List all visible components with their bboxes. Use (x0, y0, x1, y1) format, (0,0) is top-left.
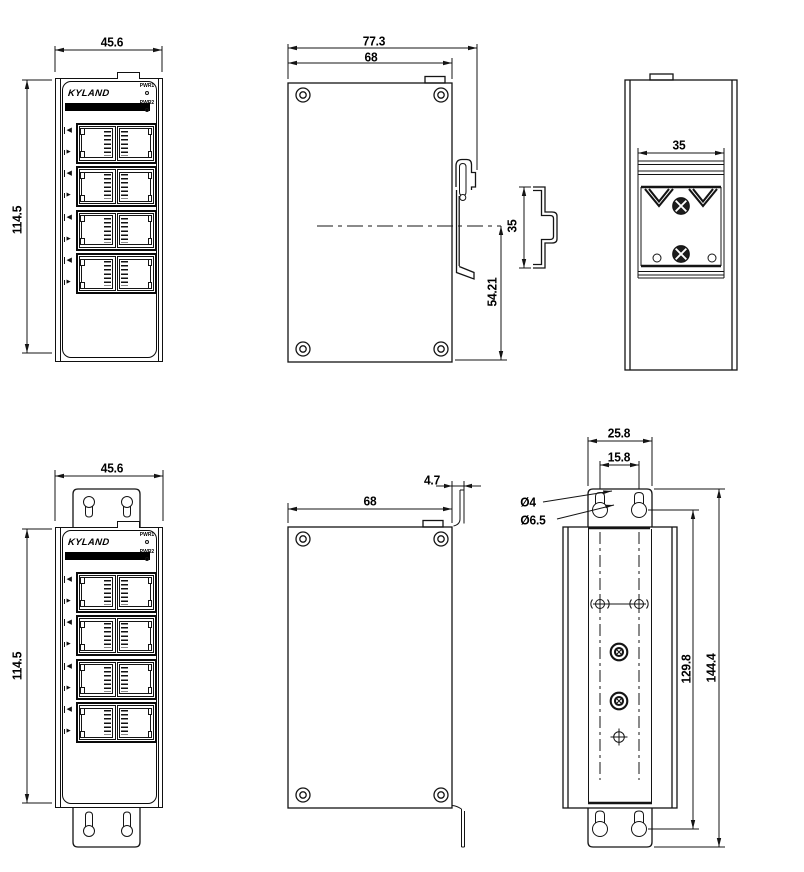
din-clip-side (456, 160, 476, 280)
tab-side-bottom (423, 521, 443, 528)
logo-bar (65, 103, 150, 111)
dim-front-top-width: 45.6 (101, 35, 124, 50)
keyhole-icon (632, 822, 647, 837)
port-row (76, 123, 157, 164)
dim-bracket-height: 144.4 (704, 653, 719, 682)
din-rail-profile (519, 187, 557, 268)
port-out-icon: ▶ (64, 729, 71, 735)
port-in-icon: ◀ (64, 170, 72, 177)
keyhole-icon (632, 503, 647, 518)
rj45-port (117, 575, 154, 610)
rj45-port (79, 256, 116, 291)
port-row (76, 210, 157, 251)
dim-front-top-height: 114.5 (10, 206, 25, 234)
port-in-icon: ◀ (64, 257, 72, 264)
dimension-drawing: KYLAND PWR1 PWR2 ◀ ▶ ◀ ▶ ◀ ▶ ◀ ▶ (0, 0, 804, 872)
rj45-port (79, 213, 116, 248)
side-view-bottom (288, 481, 481, 847)
side-rail-right (158, 79, 159, 361)
phillips-screw-icon (673, 198, 689, 214)
port-out-icon: ▶ (64, 599, 71, 605)
rear-view-top (625, 74, 737, 370)
dim-side-top-body: 68 (365, 50, 378, 65)
pwr1-label: PWR1 (140, 532, 154, 538)
kyland-logo: KYLAND (67, 537, 110, 548)
rj45-port (117, 126, 154, 161)
side-rail-right (158, 528, 159, 807)
rj45-port (79, 705, 116, 740)
port-in-icon: ◀ (64, 127, 72, 134)
dim-rail-center-bottom: 54.21 (485, 277, 500, 306)
port-in-icon: ◀ (64, 706, 72, 713)
port-row (76, 615, 157, 656)
rj45-port (117, 256, 154, 291)
dim-front-bottom-height: 114.5 (10, 652, 25, 680)
wall-bracket-rear-top (588, 489, 652, 527)
keyhole-icon (593, 822, 608, 837)
dim-hole-span: 129.8 (679, 654, 694, 683)
front-view-top: KYLAND PWR1 PWR2 ◀ ▶ ◀ ▶ ◀ ▶ ◀ ▶ (55, 78, 163, 362)
pwr1-led: PWR1 (139, 533, 156, 544)
port-out-icon: ▶ (64, 150, 71, 156)
pwr2-led: PWR2 (139, 550, 156, 561)
port-in-icon: ◀ (64, 576, 72, 583)
position-marker-icon (611, 729, 628, 746)
dim-side-top-total: 77.3 (363, 34, 386, 49)
port-out-icon: ▶ (64, 686, 71, 692)
din-tab-rear-top (650, 74, 673, 80)
dim-hole-spacing: 15.8 (608, 450, 631, 465)
dim-bracket-width: 25.8 (608, 426, 631, 441)
rj45-port (117, 618, 154, 653)
keyhole-icon (84, 826, 95, 837)
port-row (76, 253, 157, 294)
keyhole-icon (122, 497, 133, 508)
dim-plate-offset: 4.7 (424, 473, 440, 488)
tab-front-bottom (117, 521, 140, 528)
front-panel: KYLAND PWR1 PWR2 ◀ ▶ ◀ ▶ ◀ ▶ ◀ ▶ (62, 81, 157, 358)
din-tab-front-top (117, 72, 140, 79)
led-indicator-icon (145, 108, 149, 112)
grounding-screw-icon (611, 644, 628, 661)
wall-bracket-rear-bottom (588, 808, 652, 847)
rj45-port (79, 575, 116, 610)
rj45-port (117, 169, 154, 204)
rj45-port (117, 662, 154, 697)
din-rail-edges (638, 161, 724, 175)
front-view-bottom: KYLAND PWR1 PWR2 ◀ ▶ ◀ ▶ ◀ ▶ ◀ ▶ (55, 527, 163, 808)
side-view-top (288, 44, 557, 362)
rj45-port (79, 126, 116, 161)
port-in-icon: ◀ (64, 663, 72, 670)
wall-plate-edge (453, 490, 465, 847)
pwr1-led: PWR1 (139, 84, 156, 95)
rj45-port (79, 618, 116, 653)
dim-rear-rail-width: 35 (673, 138, 686, 153)
keyhole-icon (122, 826, 133, 837)
led-indicator-icon (145, 540, 149, 544)
rear-view-bottom (543, 437, 725, 847)
port-out-icon: ▶ (64, 237, 71, 243)
side-rail-left (60, 79, 61, 361)
phillips-screw-icon (673, 246, 689, 262)
din-tab-side-top (425, 77, 445, 84)
port-row (76, 166, 157, 207)
led-indicator-icon (145, 91, 149, 95)
port-grid (76, 572, 157, 746)
port-out-icon: ▶ (64, 280, 71, 286)
pwr2-led: PWR2 (139, 101, 156, 112)
rj45-port (117, 213, 154, 248)
port-row (76, 659, 157, 700)
rj45-port (79, 169, 116, 204)
screw-marker-icon (591, 596, 648, 612)
port-row (76, 702, 157, 743)
pwr2-label: PWR2 (140, 549, 154, 555)
side-rail-left (60, 528, 61, 807)
dim-hole-diameter: Ø6.5 (520, 513, 545, 528)
kyland-logo: KYLAND (67, 88, 110, 99)
led-indicator-icon (145, 557, 149, 561)
wall-bracket-front-bottom (73, 808, 140, 847)
pwr1-label: PWR1 (140, 83, 154, 89)
front-panel: KYLAND PWR1 PWR2 ◀ ▶ ◀ ▶ ◀ ▶ ◀ ▶ (62, 530, 157, 804)
logo-bar (65, 552, 150, 560)
port-row (76, 572, 157, 613)
dim-front-bottom-width: 45.6 (101, 461, 124, 476)
port-in-icon: ◀ (64, 214, 72, 221)
dim-side-bottom-body: 68 (364, 494, 377, 509)
dim-slot-diameter: Ø4 (520, 495, 536, 510)
port-out-icon: ▶ (64, 193, 71, 199)
rj45-port (117, 705, 154, 740)
rj45-port (79, 662, 116, 697)
port-out-icon: ▶ (64, 642, 71, 648)
pwr2-label: PWR2 (140, 100, 154, 106)
keyhole-icon (84, 497, 95, 508)
dim-rail-profile-width: 35 (505, 220, 520, 233)
grounding-screw-icon (611, 693, 628, 710)
port-grid (76, 123, 157, 297)
port-in-icon: ◀ (64, 619, 72, 626)
